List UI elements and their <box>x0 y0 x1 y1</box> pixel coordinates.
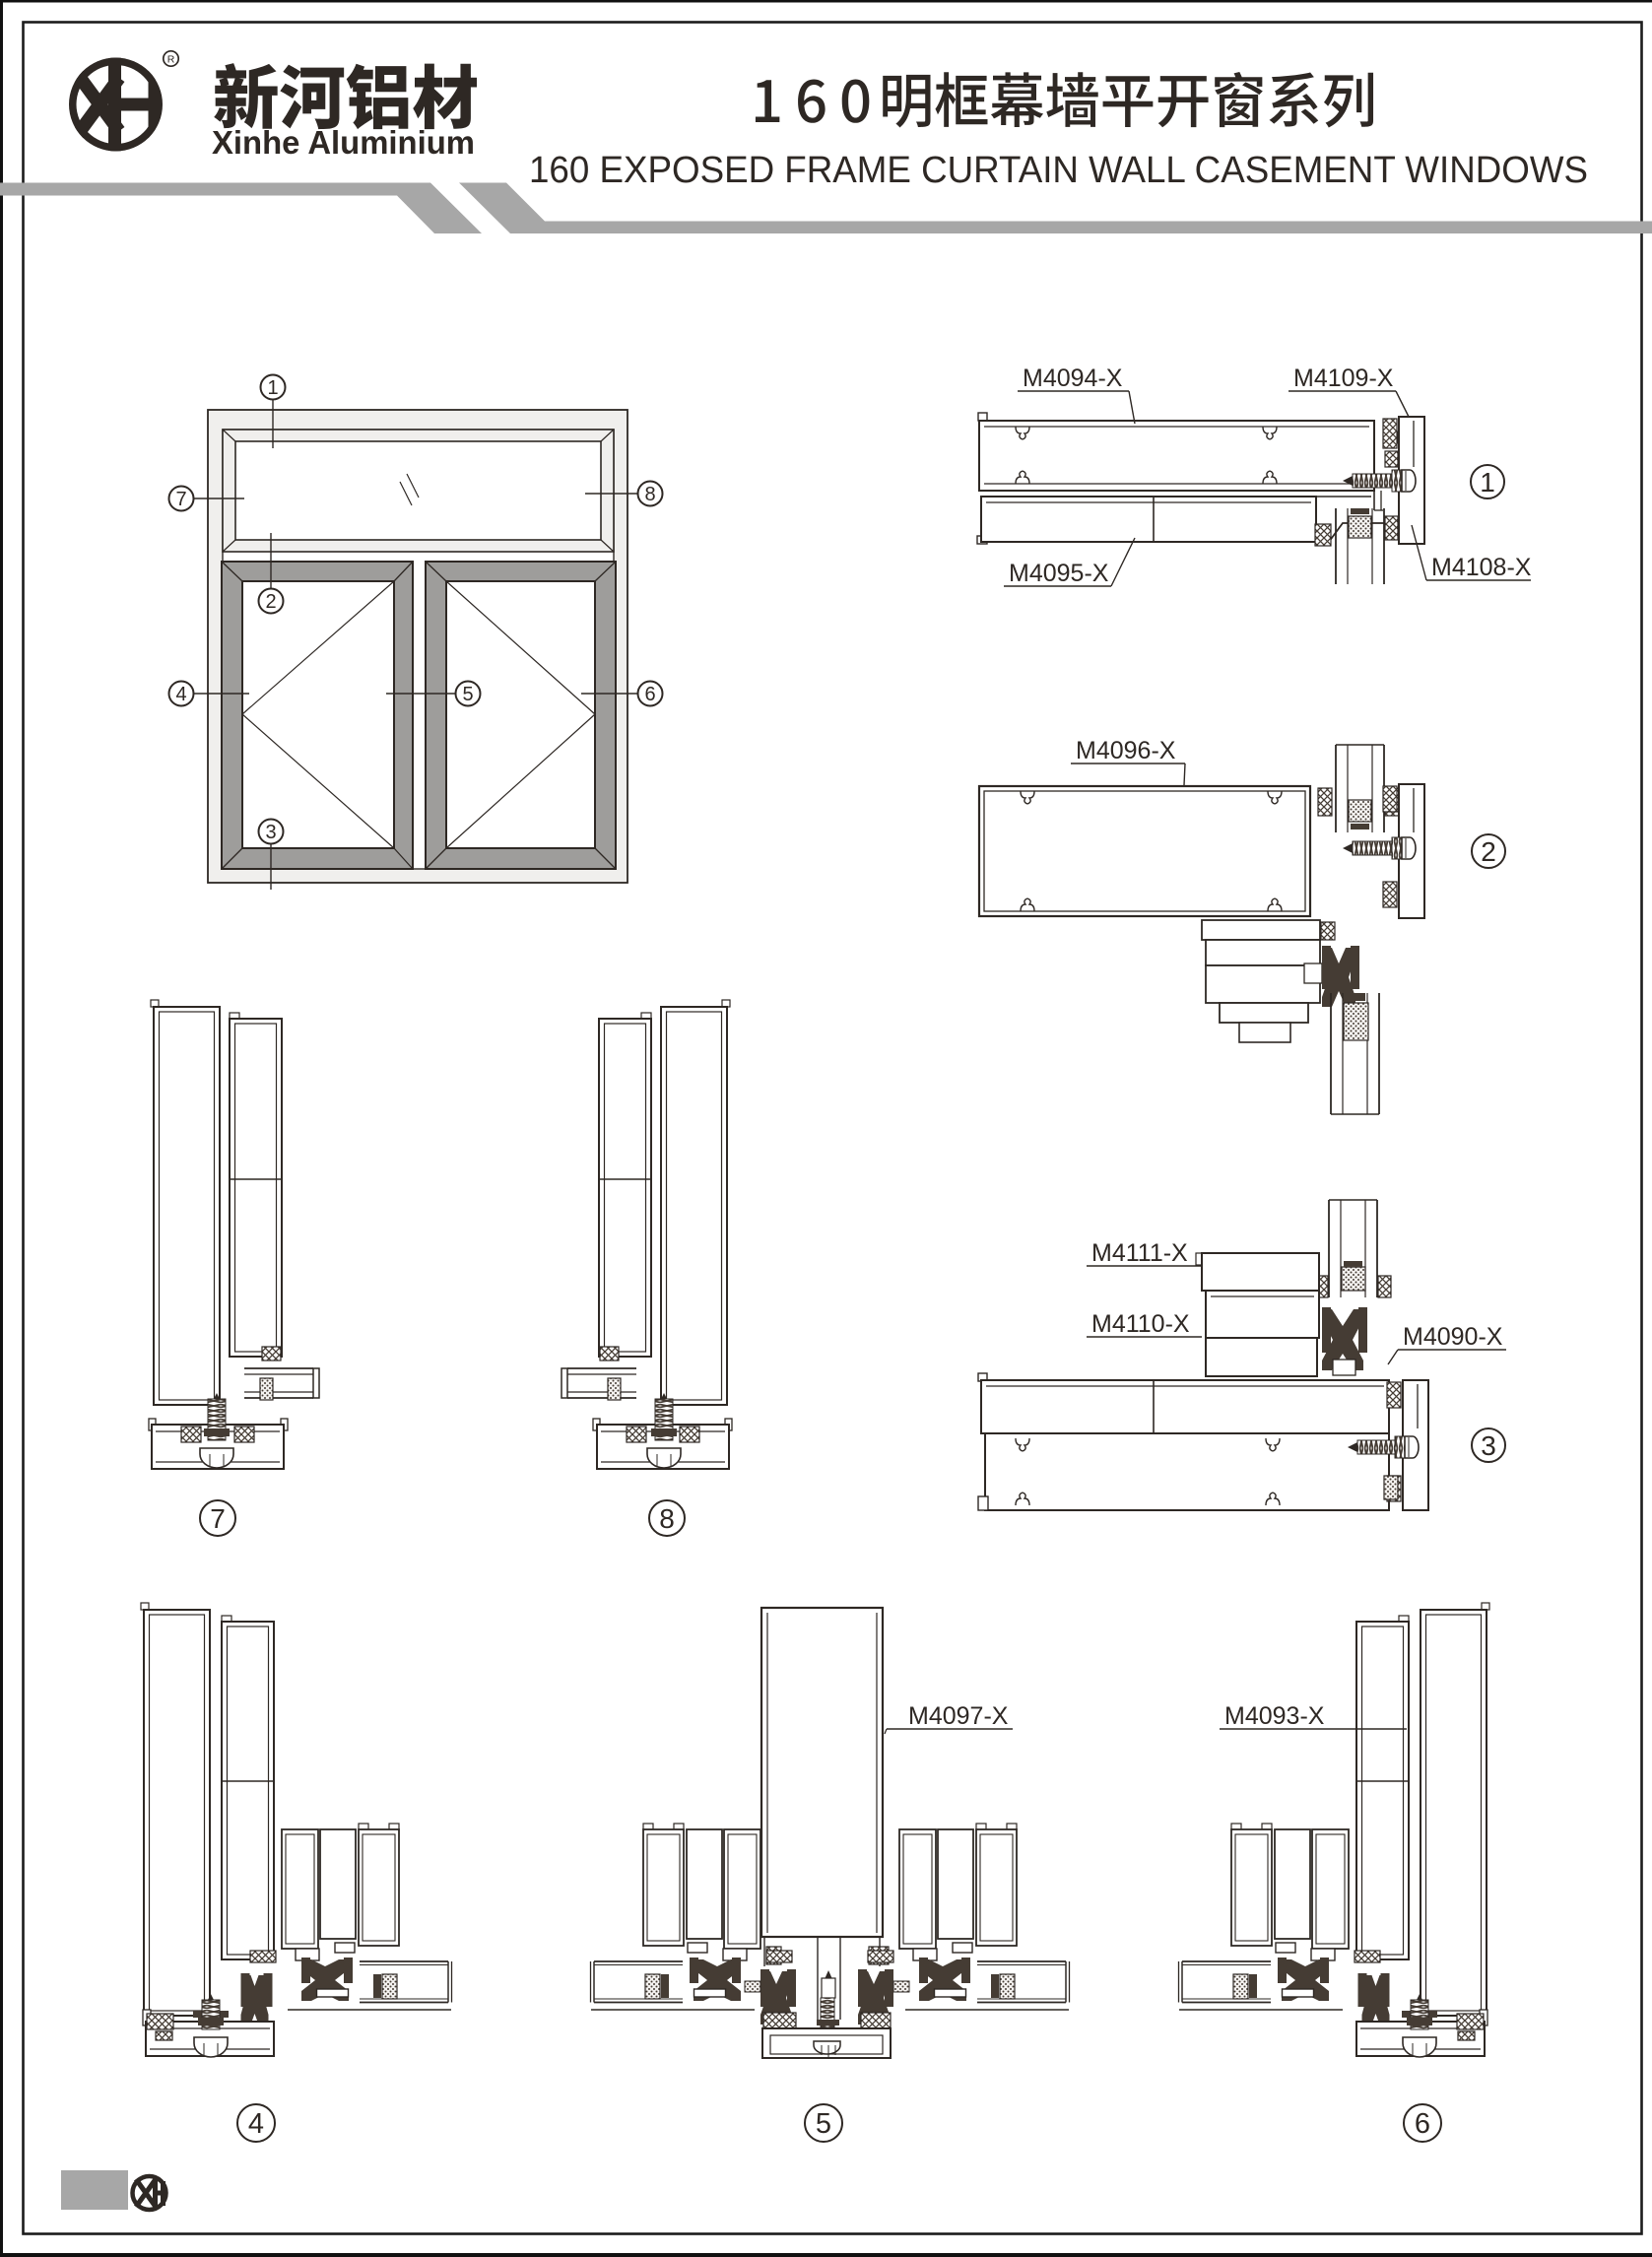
svg-text:M4095-X: M4095-X <box>1009 560 1109 587</box>
svg-text:M4109-X: M4109-X <box>1293 365 1394 392</box>
svg-text:6: 6 <box>644 684 655 705</box>
svg-text:5: 5 <box>816 2108 831 2140</box>
svg-text:3: 3 <box>265 822 276 843</box>
svg-text:M4110-X: M4110-X <box>1091 1310 1190 1338</box>
svg-text:1: 1 <box>1480 467 1495 498</box>
svg-text:8: 8 <box>644 484 655 505</box>
svg-text:4: 4 <box>248 2108 264 2140</box>
svg-text:R: R <box>167 54 175 66</box>
svg-text:7: 7 <box>210 1503 226 1534</box>
svg-text:160 EXPOSED FRAME CURTAIN WALL: 160 EXPOSED FRAME CURTAIN WALL CASEMENT … <box>529 150 1588 191</box>
svg-text:2: 2 <box>265 591 276 613</box>
svg-text:M4093-X: M4093-X <box>1224 1702 1325 1730</box>
svg-text:M4108-X: M4108-X <box>1431 554 1532 581</box>
svg-text:4: 4 <box>175 684 186 705</box>
svg-text:8: 8 <box>659 1503 675 1534</box>
svg-text:M4097-X: M4097-X <box>908 1702 1009 1730</box>
svg-text:6: 6 <box>1415 2108 1430 2140</box>
svg-text:3: 3 <box>1481 1430 1496 1461</box>
svg-text:M4111-X: M4111-X <box>1091 1239 1188 1267</box>
svg-text:5: 5 <box>462 684 473 705</box>
svg-text:2: 2 <box>1481 836 1496 867</box>
svg-text:1: 1 <box>267 377 278 399</box>
svg-text:7: 7 <box>175 489 186 510</box>
svg-text:M4096-X: M4096-X <box>1076 737 1176 764</box>
svg-text:M4090-X: M4090-X <box>1403 1323 1503 1351</box>
svg-text:Xinhe Aluminium: Xinhe Aluminium <box>212 124 475 161</box>
svg-text:M4094-X: M4094-X <box>1023 365 1123 392</box>
